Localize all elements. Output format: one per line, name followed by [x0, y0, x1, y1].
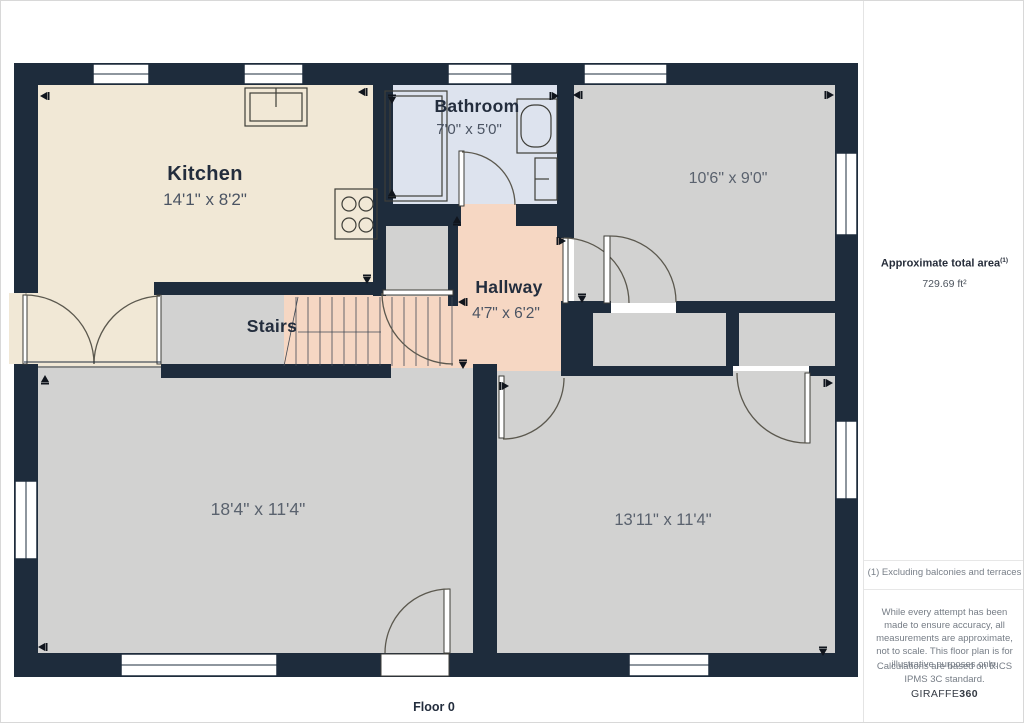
- room-top-right-dims: 10'6" x 9'0": [689, 170, 768, 187]
- kitchen-label: Kitchen: [167, 163, 242, 185]
- kitchen-dims: 14'1" x 8'2": [163, 190, 247, 209]
- wall-bathroom-bedroom: [557, 85, 574, 238]
- window: [836, 153, 857, 235]
- hallway-dims: 4'7" x 6'2": [472, 305, 540, 322]
- footnote-ref: (1): [1000, 257, 1008, 264]
- wall-hallway-right: [561, 301, 593, 376]
- info-sidebar: Approximate total area(1) 729.69 ft² (1)…: [863, 1, 1024, 723]
- wall-outer-left-upper: [14, 63, 38, 293]
- area-footnote: (1) Excluding balconies and terraces: [864, 567, 1024, 578]
- wall-vestibule-bottom: [561, 366, 733, 376]
- wall-bottom-right-stub: [809, 366, 835, 376]
- wall-stairs-bottom: [161, 364, 391, 378]
- understairs-closet-floor: [386, 226, 448, 296]
- window: [93, 64, 149, 84]
- wall-closets-divider: [726, 313, 739, 366]
- wall-stairs-top: [154, 282, 381, 295]
- wall-bathroom-bottom-right: [516, 204, 557, 226]
- stairs-label: Stairs: [247, 316, 297, 336]
- standard-note: Calculations are based on RICS IPMS 3C s…: [872, 660, 1017, 686]
- wall-bottom-rooms-divider: [473, 364, 497, 653]
- divider: [864, 589, 1024, 590]
- total-area-value: 729.69 ft²: [864, 278, 1024, 290]
- closet-top-right-floor: [593, 313, 726, 366]
- stairs-treads-floor: [284, 295, 456, 368]
- total-area-title: Approximate total area(1): [864, 257, 1024, 270]
- floorplan-page: Kitchen 14'1" x 8'2" Bathroom 7'0" x 5'0…: [0, 0, 1024, 723]
- room-top-right-floor: [574, 85, 835, 303]
- hallway-label: Hallway: [475, 277, 542, 297]
- entrance-door-threshold: [381, 654, 449, 676]
- divider: [864, 560, 1024, 561]
- window: [244, 64, 303, 84]
- window: [836, 421, 857, 499]
- wall-bathroom-bottom-left: [393, 204, 461, 226]
- floorplan-canvas: Kitchen 14'1" x 8'2" Bathroom 7'0" x 5'0…: [1, 1, 863, 723]
- window: [629, 654, 709, 676]
- giraffe360-logo: GIRAFFE360: [864, 688, 1024, 700]
- window: [15, 481, 37, 559]
- bathroom-label: Bathroom: [434, 96, 519, 116]
- window: [121, 654, 277, 676]
- window: [584, 64, 667, 84]
- wall-below-top-right-room-right: [676, 301, 835, 313]
- bathroom-dims: 7'0" x 5'0": [436, 121, 502, 138]
- window: [448, 64, 512, 84]
- room-bottom-right-dims: 13'11" x 11'4": [614, 511, 711, 529]
- floor-label: Floor 0: [413, 700, 455, 714]
- room-bottom-left-dims: 18'4" x 11'4": [211, 499, 306, 519]
